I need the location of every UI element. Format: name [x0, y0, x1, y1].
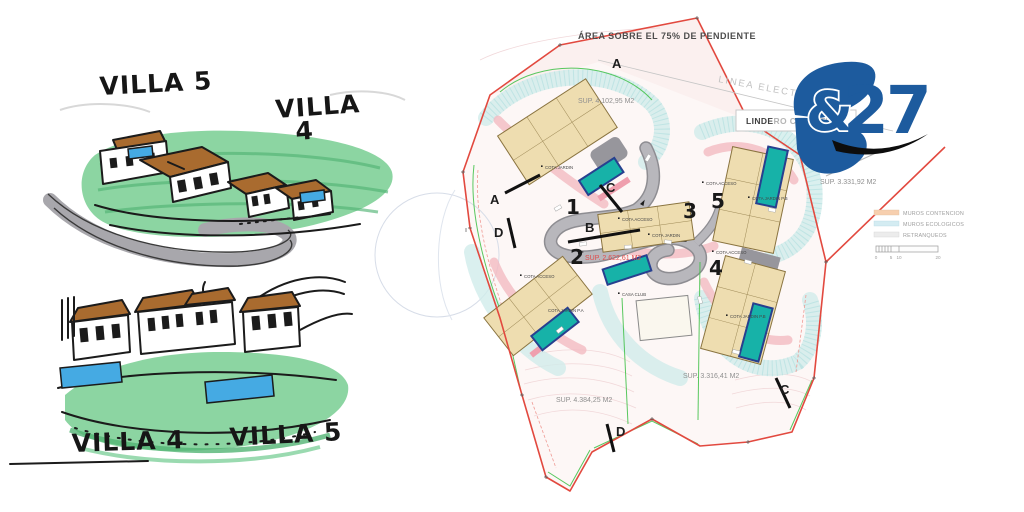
- lindero-label-strong: LINDE: [746, 116, 774, 126]
- cota-casa-club: CASA CLUB: [622, 292, 646, 297]
- sketch-villa4-bottom-building: [60, 300, 130, 388]
- legend-swatch-contencion: [874, 210, 899, 215]
- area-label-plot2: SUP. 2.622,61 M2: [585, 255, 641, 262]
- section-c-center: C: [606, 180, 616, 195]
- artwork: VILLA 5 VILLA 4: [0, 0, 1024, 512]
- casa-club-building: [636, 295, 692, 340]
- scale-tick-5: 5: [890, 255, 893, 260]
- company-logo: & 27: [794, 62, 929, 174]
- legend-label-ecologicos: MUROS ECOLOGICOS: [903, 222, 964, 228]
- plot-number-2: 2: [570, 245, 584, 269]
- legend-label-contencion: MUROS CONTENCION: [903, 211, 964, 217]
- section-d-left: D: [494, 225, 503, 240]
- plot-number-4: 4: [709, 256, 723, 280]
- section-c-bottom: C: [780, 382, 790, 397]
- sketch-center-building: [135, 288, 235, 354]
- plot-number-5: 5: [711, 189, 725, 213]
- section-a-top: A: [612, 56, 622, 71]
- cota-p2-jardin: COTA JARDIN P.A: [548, 308, 584, 313]
- cota-p5-acceso: COTA ACCESO: [706, 181, 737, 186]
- legend-label-retranqueos: RETRANQUEOS: [903, 233, 947, 239]
- scale-tick-10: 10: [896, 255, 902, 260]
- cota-p3-acceso: COTA ACCESO: [622, 217, 653, 222]
- sketch-top: VILLA 5 VILLA 4: [48, 66, 405, 266]
- scale-tick-0: 0: [875, 255, 878, 260]
- villa4-label-top-line1: VILLA: [274, 89, 361, 124]
- cota-p4-acceso: COTA ACCESO: [716, 250, 747, 255]
- screenshot-canvas: VILLA 5 VILLA 4: [0, 0, 1024, 512]
- area-label-south: SUP. 4.384,25 M2: [556, 397, 612, 404]
- area-label-plot4: SUP. 3.316,41 M2: [683, 373, 739, 380]
- villa4-label-top-line2: 4: [294, 116, 314, 146]
- villa4-label-bottom: VILLA 4: [71, 425, 185, 458]
- area-label-plot1: SUP. 4.102,95 M2: [578, 98, 634, 105]
- area-label-plot5: SUP. 3.331,92 M2: [820, 179, 876, 186]
- villa5-label-top: VILLA 5: [99, 66, 213, 101]
- plan-title: ÁREA SOBRE EL 75% DE PENDIENTE: [578, 31, 756, 41]
- section-d-bottom: D: [616, 424, 625, 439]
- plot-number-3: 3: [683, 199, 697, 223]
- cota-p4-jardin: COTA JARDIN P.B: [730, 314, 766, 319]
- section-a-left: A: [490, 192, 500, 207]
- logo-number: 27: [843, 72, 929, 149]
- site-plan: LINEA ELECTRICA ÁREA SOBRE EL 75% DE PEN…: [375, 16, 964, 491]
- plot-number-1: 1: [566, 195, 580, 219]
- cota-p3-jardin: COTA JARDIN: [652, 233, 680, 238]
- scale-tick-20: 20: [935, 255, 941, 260]
- sketch-bottom: VILLA 4 VILLA 5: [10, 277, 352, 464]
- legend-swatch-retranqueos: [874, 232, 899, 237]
- cota-p2-acceso: COTA ACCESO: [524, 274, 555, 279]
- scale-bar: 0 5 10 20: [875, 246, 941, 260]
- cota-p5-jardin: COTA JARDIN P.B: [752, 196, 788, 201]
- legend: MUROS CONTENCION MUROS ECOLOGICOS RETRAN…: [874, 210, 964, 239]
- villa5-label-bottom: VILLA 5: [229, 417, 343, 452]
- section-b-center: B: [585, 220, 594, 235]
- legend-swatch-ecologicos: [874, 221, 899, 226]
- cota-p1-jardin: COTA JARDIN: [545, 165, 573, 170]
